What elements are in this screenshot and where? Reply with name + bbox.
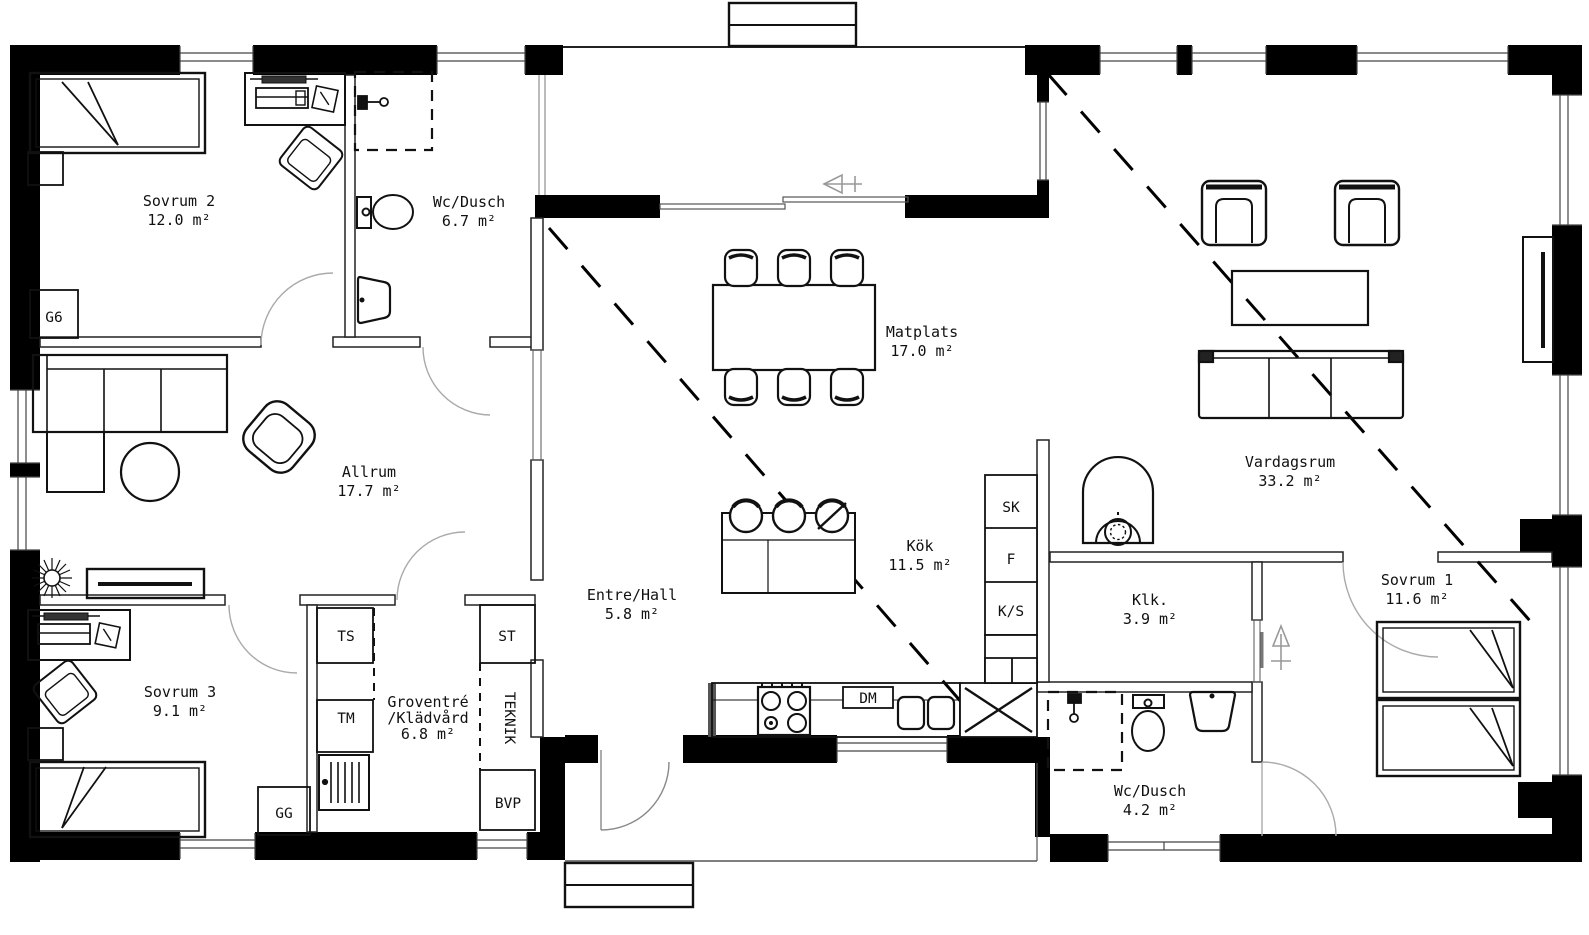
- fixture-label-tm: TM: [337, 711, 355, 727]
- plant-icon: [32, 558, 72, 598]
- fixture-label-dm: DM: [859, 691, 877, 707]
- desk-chair: [31, 658, 98, 725]
- room-label-kok: Kök: [906, 537, 933, 555]
- room-label-allrum: Allrum: [342, 463, 396, 481]
- shower-mixer-icon: [358, 96, 388, 109]
- corner-sofa: [33, 355, 227, 492]
- round-table: [121, 443, 179, 501]
- furniture-vardagsrum: [1083, 181, 1553, 545]
- fixture-label-ks: K/S: [998, 604, 1024, 620]
- bar-stool: [773, 500, 805, 532]
- room-area-sovrum-3: 9.1 m²: [153, 702, 207, 720]
- fixture-label-bvp: BVP: [495, 796, 521, 812]
- shower: [355, 72, 432, 150]
- door-sovrum2: [261, 273, 333, 345]
- coffee-table: [1232, 271, 1368, 325]
- fixture-label-g6: G6: [45, 310, 62, 326]
- room-area-vardagsrum: 33.2 m²: [1258, 472, 1321, 490]
- room-label-sovrum-1: Sovrum 1: [1381, 571, 1453, 589]
- furniture-sovrum-2: [28, 73, 345, 192]
- room-area-sovrum-2: 12.0 m²: [147, 211, 210, 229]
- furniture-sovrum-3: [28, 610, 205, 837]
- room-area-kok: 11.5 m²: [888, 556, 951, 574]
- room-label-wc-dusch-1: Wc/Dusch: [433, 193, 505, 211]
- fixture-label-f: F: [1007, 552, 1016, 568]
- bed: [30, 762, 205, 837]
- bed: [1377, 622, 1520, 698]
- room-area-groventre-kladvard: 6.8 m²: [401, 725, 455, 743]
- room-area-klk: 3.9 m²: [1123, 610, 1177, 628]
- furniture-allrum: [32, 355, 321, 598]
- fixture-label-ts: TS: [337, 629, 354, 645]
- shower: [1048, 692, 1122, 770]
- room-area-wc-dusch-2: 4.2 m²: [1123, 801, 1177, 819]
- utility-cabinets: [30, 290, 535, 835]
- room-area-entre-hall: 5.8 m²: [605, 605, 659, 623]
- door-wc-top: [423, 347, 490, 415]
- tv-bench: [87, 569, 204, 598]
- room-area-wc-dusch-1: 6.7 m²: [442, 212, 496, 230]
- tv-unit: [1523, 237, 1553, 362]
- sliding-door: [660, 197, 908, 209]
- desk: [28, 610, 130, 660]
- entry-arrow-icon: [824, 175, 862, 193]
- veranda-and-porches: [539, 3, 1037, 907]
- desk-chair: [277, 124, 344, 191]
- furniture-sovrum-1: [1377, 622, 1520, 776]
- stove: [758, 683, 810, 735]
- room-label-klk: Klk.: [1132, 591, 1168, 609]
- room-label-vardagsrum: Vardagsrum: [1245, 453, 1335, 471]
- room-area-sovrum-1: 11.6 m²: [1385, 590, 1448, 608]
- floor-plan-page: Sovrum 212.0 m²Wc/Dusch6.7 m²Allrum17.7 …: [0, 0, 1589, 935]
- bathroom-bottom: [1048, 692, 1235, 770]
- toilet: [1132, 695, 1164, 751]
- room-label-entre-hall: Entre/Hall: [587, 586, 677, 604]
- exterior-walls: [10, 45, 1582, 862]
- dining-set: [713, 250, 875, 405]
- room-label-matplats: Matplats: [886, 323, 958, 341]
- room-label-wc-dusch-2: Wc/Dusch: [1114, 782, 1186, 800]
- floor-plan-svg: Sovrum 212.0 m²Wc/Dusch6.7 m²Allrum17.7 …: [0, 0, 1589, 935]
- bed: [1377, 700, 1520, 776]
- sofa: [1199, 351, 1403, 418]
- room-label-sovrum-3: Sovrum 3: [144, 683, 216, 701]
- fixture-label-st: ST: [498, 629, 516, 645]
- door-groventre: [397, 532, 465, 600]
- door-entre: [601, 750, 669, 830]
- door-sovrum3: [229, 605, 297, 673]
- room-area-allrum: 17.7 m²: [337, 482, 400, 500]
- fixture-label-gg: GG: [275, 806, 292, 822]
- fireplace: [1083, 457, 1153, 545]
- shower-mixer-icon: [1068, 694, 1081, 722]
- fixture-label-teknik: TEKNIK: [501, 692, 517, 745]
- bathroom-top: [355, 72, 432, 323]
- desk: [245, 73, 345, 125]
- bar-stool: [730, 500, 762, 532]
- door-wc-bottom: [1262, 762, 1336, 836]
- bed: [30, 73, 205, 153]
- louvre-door: [319, 755, 369, 810]
- room-area-matplats: 17.0 m²: [890, 342, 953, 360]
- fixture-label-sk: SK: [1002, 500, 1020, 516]
- room-label-sovrum-2: Sovrum 2: [143, 192, 215, 210]
- sink-kitchen: [898, 697, 954, 729]
- toilet: [357, 195, 413, 229]
- armchair-allrum: [237, 395, 322, 480]
- hall-arrow-icon: [1262, 626, 1291, 670]
